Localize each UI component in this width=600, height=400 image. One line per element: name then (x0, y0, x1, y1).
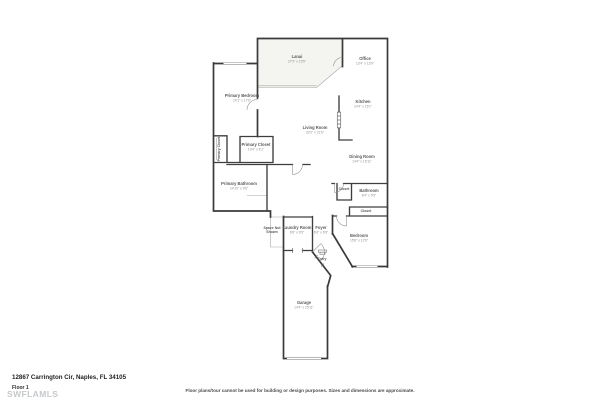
room-label: Closet (361, 209, 373, 213)
room-label: Primary Closet10'4" x 8'1" (242, 142, 272, 151)
opening-ticks (293, 112, 341, 266)
room-label: Primary Closet (217, 136, 221, 162)
room-label: Primary Bathroom14'10" x 9'6" (221, 181, 257, 190)
lanai-area (258, 40, 342, 88)
floor-plan: Lanai27'9" x 15'5"Office13'4" x 13'9"Pri… (0, 0, 600, 400)
room-label: Office13'4" x 13'9" (356, 56, 375, 65)
room-label: Kitchen14'4" x 15'1" (354, 99, 373, 108)
room-label: Closet (339, 187, 351, 191)
room-label: Bathroom8'4" x 5'9" (359, 188, 379, 197)
disclaimer-text: Floor plans/tour cannot be used for buil… (0, 388, 600, 393)
room-label: Bedroom15'8" x 12'6" (350, 233, 369, 242)
room-label: Laundry Room6'8" x 6'5" (283, 225, 312, 234)
kitchen-hatch (337, 112, 340, 128)
room-label: Living Room20'2" x 21'6" (303, 125, 328, 134)
garage-door (287, 357, 321, 361)
floor-plan-page: Lanai27'9" x 15'5"Office13'4" x 13'9"Pri… (0, 0, 600, 400)
room-label: Garage14'4" x 25'11" (294, 300, 314, 309)
property-address: 12867 Carrington Cir, Naples, FL 34105 (12, 374, 126, 381)
room-label: Primary Bedroom14'1" x 17'6" (225, 93, 260, 102)
room-label: Foyer6'6" x 6'9" (314, 225, 329, 234)
room-label: Space NotShown (263, 226, 281, 234)
entry-steps-icon (319, 250, 327, 254)
room-label: Dining Room14'4" x 16'11" (349, 154, 375, 163)
room-labels: Lanai27'9" x 15'5"Office13'4" x 13'9"Pri… (217, 54, 379, 309)
room-label: Entry (318, 257, 327, 261)
